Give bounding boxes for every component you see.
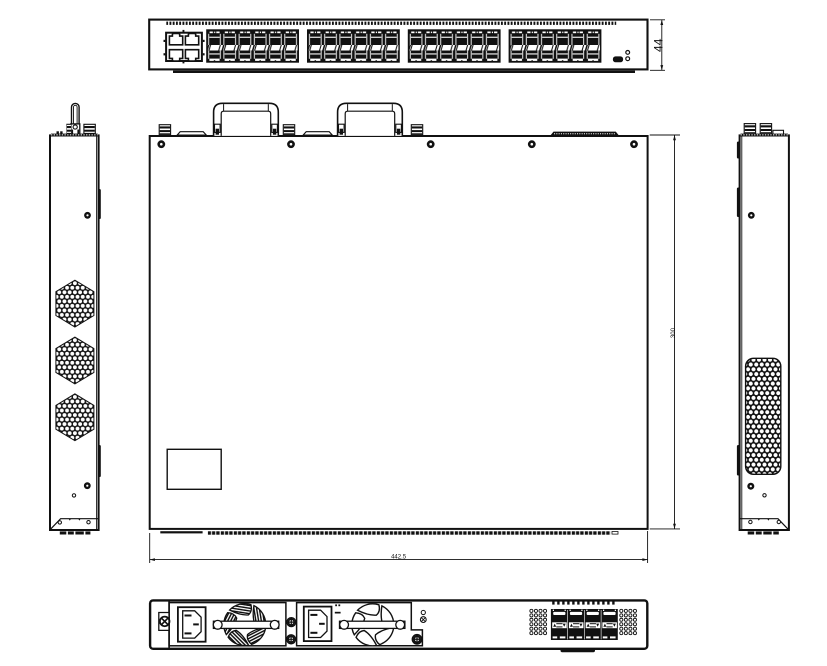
svg-text:44: 44 — [652, 38, 666, 52]
svg-text:300: 300 — [671, 327, 677, 338]
svg-text:442.5: 442.5 — [391, 555, 407, 561]
